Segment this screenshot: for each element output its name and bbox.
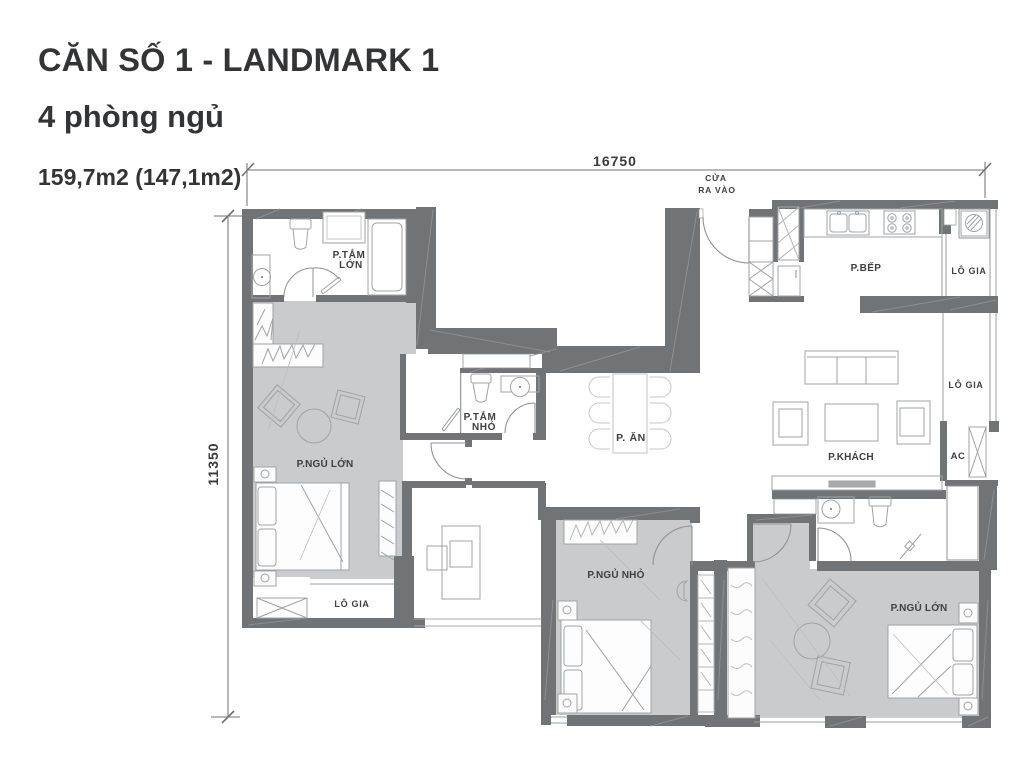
- svg-text:11350: 11350: [205, 442, 221, 485]
- svg-text:CỬA: CỬA: [705, 172, 727, 183]
- svg-text:P.NGỦ NHỎ: P.NGỦ NHỎ: [587, 568, 644, 581]
- svg-text:NHỎ: NHỎ: [472, 420, 496, 433]
- svg-text:P.NGỦ LỚN: P.NGỦ LỚN: [297, 457, 354, 470]
- svg-text:4 phòng ngủ: 4 phòng ngủ: [38, 99, 224, 134]
- svg-text:LÔ GIA: LÔ GIA: [951, 265, 986, 276]
- svg-text:LÔ GIA: LÔ GIA: [334, 598, 369, 609]
- svg-text:LÔ GIA: LÔ GIA: [948, 379, 983, 390]
- svg-text:RA VÀO: RA VÀO: [698, 185, 736, 195]
- svg-text:P.NGỦ LỚN: P.NGỦ LỚN: [891, 601, 948, 614]
- svg-text:P.KHÁCH: P.KHÁCH: [828, 450, 874, 463]
- svg-text:P.BẾP: P.BẾP: [851, 261, 882, 274]
- svg-text:P. ĂN: P. ĂN: [616, 431, 646, 444]
- svg-text:LỚN: LỚN: [339, 258, 363, 271]
- svg-text:CĂN SỐ 1 - LANDMARK 1: CĂN SỐ 1 - LANDMARK 1: [38, 40, 439, 78]
- svg-text:16750: 16750: [593, 153, 637, 169]
- svg-text:AC: AC: [951, 451, 966, 462]
- svg-text:159,7m2 (147,1m2): 159,7m2 (147,1m2): [38, 164, 241, 190]
